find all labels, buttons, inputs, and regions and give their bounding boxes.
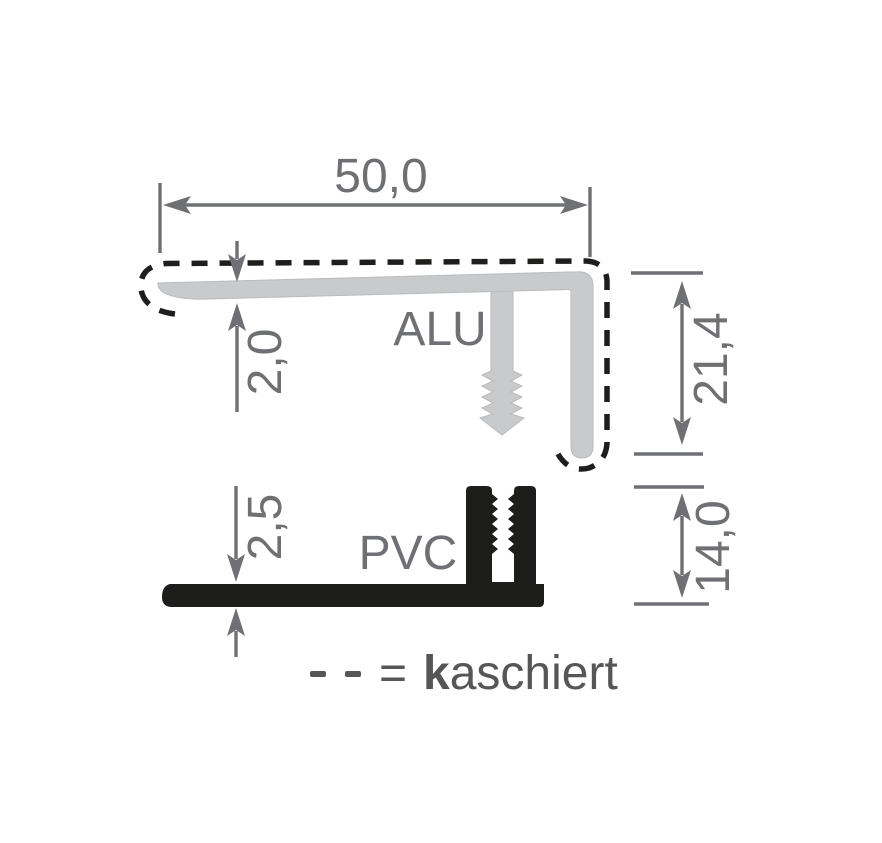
pvc-profile-shape bbox=[162, 486, 544, 607]
dim-value-pvc-height: 14,0 bbox=[690, 500, 738, 593]
legend-term-initial: k bbox=[423, 647, 450, 700]
dim-value-alu-height: 21,4 bbox=[688, 312, 736, 405]
dim-value-alu-thickness: 2,0 bbox=[242, 329, 290, 396]
dim-value-overall-width: 50,0 bbox=[334, 153, 427, 201]
dim-value-pvc-thickness: 2,5 bbox=[242, 494, 290, 561]
legend-equals: = bbox=[379, 650, 407, 698]
legend: = kaschiert bbox=[310, 650, 618, 698]
dash-sample-icon bbox=[345, 671, 361, 677]
dash-sample-icon bbox=[310, 671, 326, 677]
legend-term: kaschiert bbox=[423, 650, 618, 698]
legend-term-rest: aschiert bbox=[450, 647, 618, 700]
pvc-profile bbox=[162, 486, 544, 607]
technical-drawing: 50,0 2,0 ALU 21,4 2,5 PVC 14,0 = kaschie… bbox=[0, 0, 882, 843]
label-alu: ALU bbox=[393, 306, 486, 354]
alu-flange-shape bbox=[158, 272, 593, 458]
label-pvc: PVC bbox=[359, 530, 458, 578]
profile-linework bbox=[0, 0, 882, 843]
alu-profile bbox=[158, 272, 593, 458]
